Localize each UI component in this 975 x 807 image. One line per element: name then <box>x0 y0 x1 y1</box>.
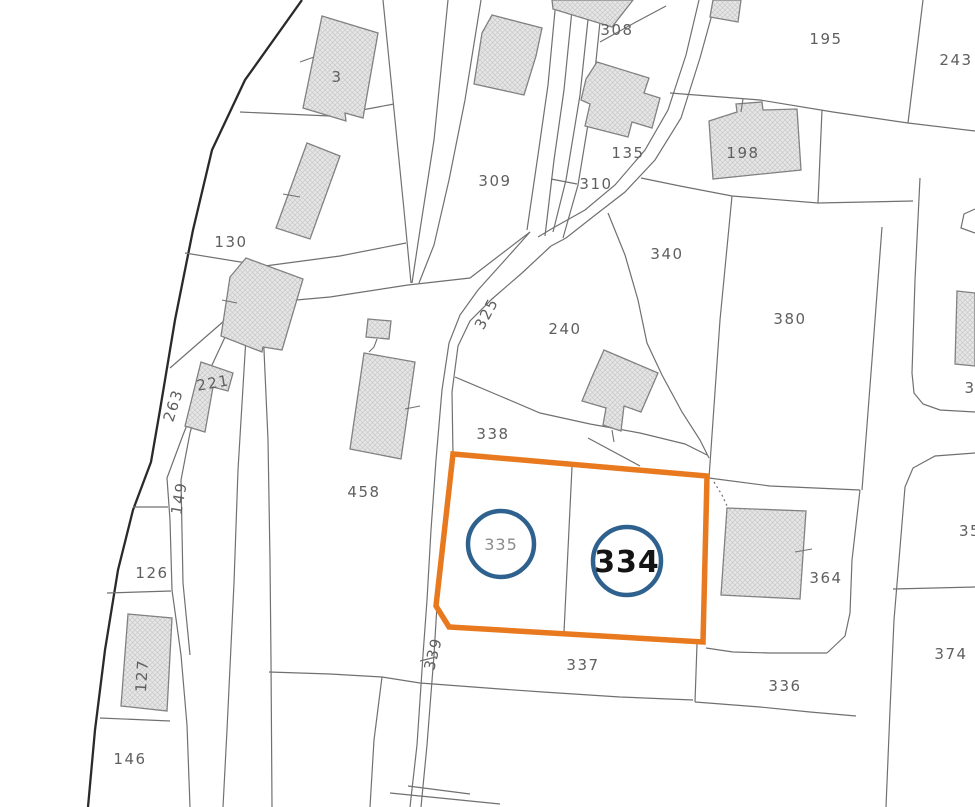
parcel-line <box>706 648 827 653</box>
parcel-label-380: 380 <box>773 310 806 328</box>
parcel-label-240: 240 <box>548 320 581 338</box>
parcel-line <box>408 786 470 794</box>
cadastral-map-canvas: 3130308195243198135309310340380240325338… <box>0 0 975 807</box>
parcel-label-126: 126 <box>135 564 168 582</box>
parcel-line <box>107 591 171 593</box>
parcel-label-374: 374 <box>934 645 967 663</box>
parcel-label-309: 309 <box>478 172 511 190</box>
parcel-line <box>714 482 728 508</box>
building-tick <box>300 57 314 62</box>
parcel-line <box>862 227 882 490</box>
parcel-line <box>908 0 923 123</box>
parcel-label-325: 325 <box>471 295 502 333</box>
parcel-label-3: 3 <box>964 379 975 397</box>
circled-parcel-label-334: 334 <box>594 545 660 580</box>
parcel-label-146: 146 <box>113 750 146 768</box>
parcel-line <box>410 232 530 807</box>
building-tick <box>612 430 614 442</box>
parcel-label-340: 340 <box>650 245 683 263</box>
parcel-label-310: 310 <box>579 175 612 193</box>
building-tick <box>369 339 377 352</box>
circled-parcel-label-335: 335 <box>484 535 518 554</box>
parcel-label-364: 364 <box>809 569 842 587</box>
parcel-line <box>545 0 573 236</box>
parcel-line <box>818 110 822 203</box>
parcel-line <box>100 718 170 721</box>
building-footprint <box>474 15 542 95</box>
parcel-label-458: 458 <box>347 483 380 501</box>
building-footprint <box>276 143 340 239</box>
parcel-line <box>262 305 272 807</box>
parcel-line <box>551 179 577 184</box>
parcel-line <box>390 793 500 804</box>
parcel-label-338: 338 <box>476 425 509 443</box>
parcel-line <box>695 644 697 702</box>
buildings <box>121 0 975 711</box>
parcel-line <box>588 438 640 466</box>
parcel-label-337: 337 <box>566 656 599 674</box>
building-footprint <box>709 102 801 179</box>
parcel-line <box>641 178 913 203</box>
parcel-line <box>269 672 693 700</box>
building-footprint <box>710 0 741 22</box>
parcel-label-195: 195 <box>809 30 842 48</box>
building-footprint <box>721 508 806 599</box>
building-footprint <box>350 353 415 459</box>
parcel-line <box>961 209 975 233</box>
parcel-label-127: 127 <box>132 658 152 692</box>
parcel-line <box>553 10 589 232</box>
cadastral-map: 3130308195243198135309310340380240325338… <box>0 0 975 807</box>
parcel-line <box>412 0 448 283</box>
parcel-boundary-lines <box>88 0 975 807</box>
building-footprint <box>582 350 658 431</box>
parcel-label-149: 149 <box>167 480 190 516</box>
parcel-line <box>564 467 572 632</box>
parcel-label-308: 308 <box>600 21 633 39</box>
parcel-line <box>709 196 732 478</box>
parcel-label-3: 3 <box>331 68 342 86</box>
parcel-line <box>419 0 481 283</box>
parcel-line <box>893 587 975 589</box>
parcel-line <box>370 677 382 807</box>
parcel-label-130: 130 <box>214 233 247 251</box>
parcel-label-198: 198 <box>726 144 759 162</box>
parcel-line <box>709 478 860 490</box>
parcel-line <box>383 0 411 283</box>
building-footprint <box>366 319 391 339</box>
building-footprint <box>581 62 660 137</box>
parcel-label-35: 35 <box>959 522 975 540</box>
parcel-label-135: 135 <box>611 144 644 162</box>
parcel-line <box>695 702 856 716</box>
parcel-line <box>886 453 975 807</box>
building-footprint <box>221 258 303 352</box>
building-footprint <box>955 291 975 366</box>
parcel-label-336: 336 <box>768 677 801 695</box>
selected-parcel-circles: 335334 <box>468 511 661 595</box>
parcel-label-243: 243 <box>939 51 972 69</box>
